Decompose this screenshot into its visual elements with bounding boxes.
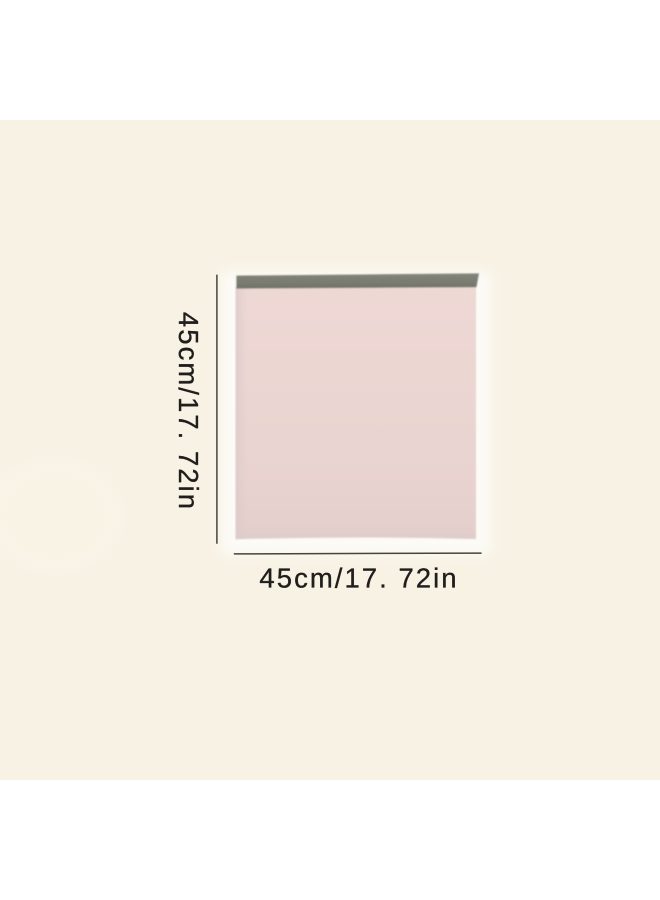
svg-text:45cm/17. 72in: 45cm/17. 72in bbox=[259, 563, 458, 594]
svg-text:45cm/17. 72in: 45cm/17. 72in bbox=[173, 312, 204, 511]
